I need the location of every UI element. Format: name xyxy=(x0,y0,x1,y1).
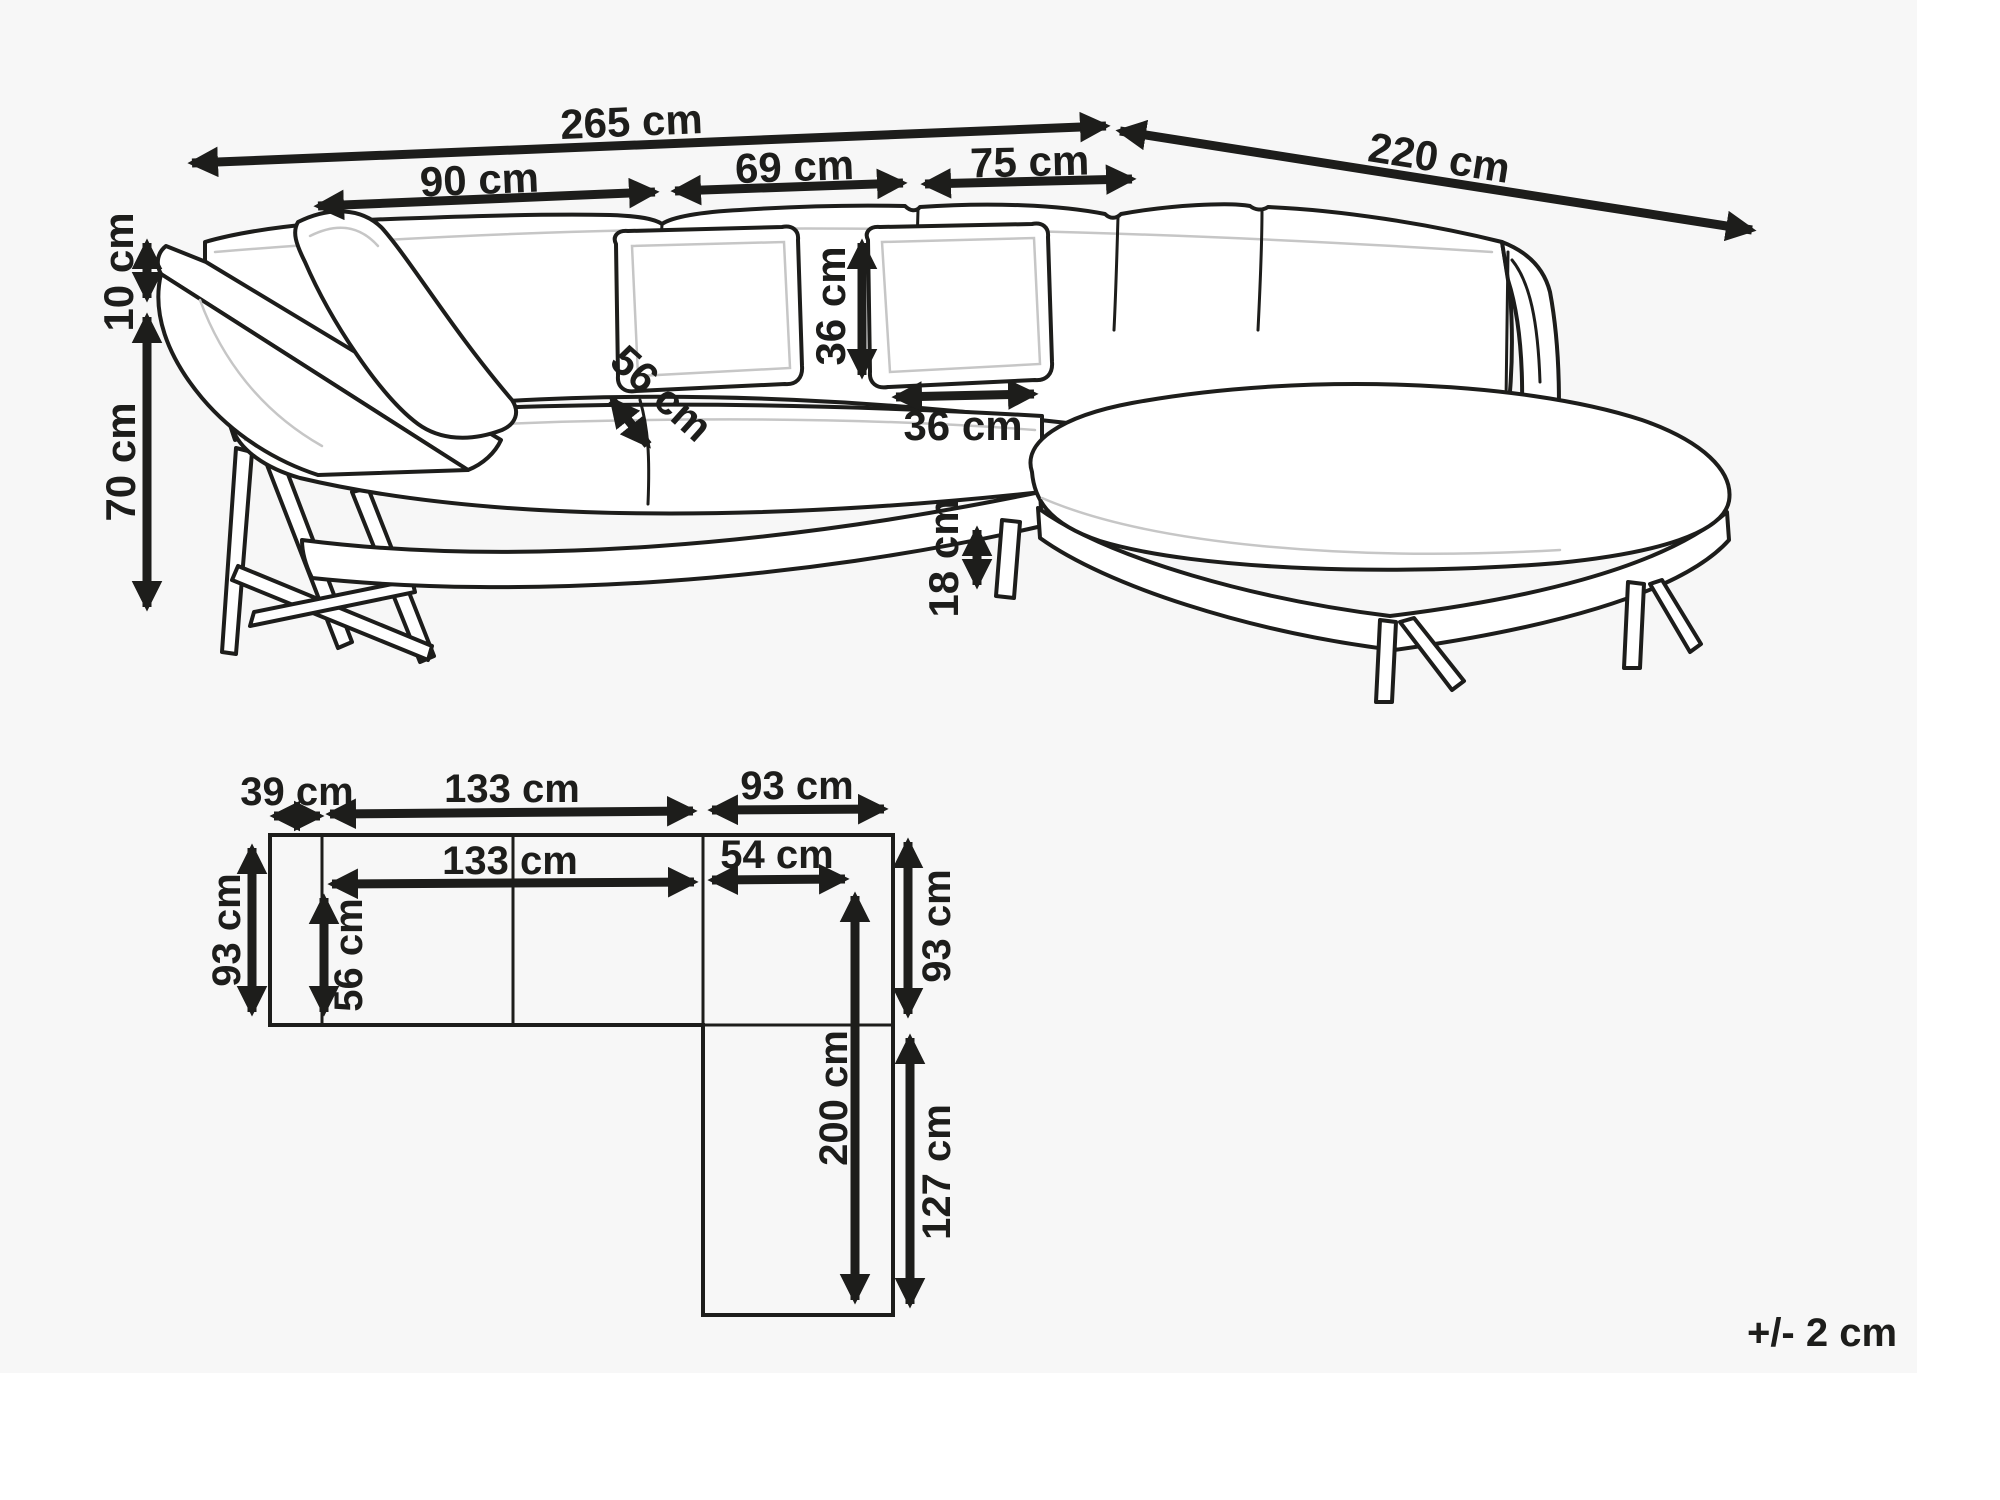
dim-pillow-height: 36 cm xyxy=(807,243,862,375)
dim-pillow-width-arrow xyxy=(896,394,1034,397)
sofa-pillow-right xyxy=(867,224,1052,388)
dim-pillow-width-label: 36 cm xyxy=(903,402,1022,449)
dim-plan-top-seat-width-label: 133 cm xyxy=(444,767,580,811)
dim-plan-inner-chaise-width-label: 54 cm xyxy=(720,833,833,877)
dim-pillow-width: 36 cm xyxy=(896,394,1034,449)
dim-plan-inner-depth-label: 56 cm xyxy=(327,898,371,1011)
dim-pillow-height-label: 36 cm xyxy=(807,246,854,365)
dim-plan-inner-chaise-width: 54 cm xyxy=(712,833,845,880)
diagram-page: 265 cm 220 cm 90 cm 69 cm 75 cm 10 cm 70… xyxy=(0,0,2000,1500)
dim-section-right-label: 75 cm xyxy=(969,136,1089,186)
tolerance-note: +/- 2 cm xyxy=(1747,1311,1897,1355)
dim-section-left-label: 90 cm xyxy=(419,154,540,206)
dim-plan-top-seat-width-arrow xyxy=(330,811,693,814)
dim-plan-inner-seat-width-label: 133 cm xyxy=(442,839,578,883)
dim-headrest-height-label: 10 cm xyxy=(95,212,142,331)
dim-plan-chaise-length-label: 200 cm xyxy=(812,1030,856,1166)
dim-overall-width-label: 265 cm xyxy=(559,95,703,148)
dim-plan-left-depth-label: 93 cm xyxy=(205,873,249,986)
dim-plan-inner-chaise-width-arrow xyxy=(712,879,845,880)
dim-plan-top-chaise-width-label: 93 cm xyxy=(740,764,853,808)
dim-plan-right-depth-label: 93 cm xyxy=(915,869,959,982)
dim-plan-chaise-inner-length-label: 127 cm xyxy=(915,1104,959,1240)
dim-section-middle-label: 69 cm xyxy=(734,141,855,192)
dim-leg-height-label: 18 cm xyxy=(920,498,967,617)
dim-plan-top-chaise-width-arrow xyxy=(712,809,884,810)
dim-plan-armrest-width: 39 cm xyxy=(240,770,353,816)
dim-back-height-label: 70 cm xyxy=(97,402,144,521)
sofa-middle-leg xyxy=(996,520,1020,598)
dim-headrest-height: 10 cm xyxy=(95,212,147,331)
dim-plan-inner-depth: 56 cm xyxy=(324,898,371,1012)
sofa-dimension-diagram: 265 cm 220 cm 90 cm 69 cm 75 cm 10 cm 70… xyxy=(0,0,2000,1500)
dim-plan-armrest-width-label: 39 cm xyxy=(240,770,353,814)
